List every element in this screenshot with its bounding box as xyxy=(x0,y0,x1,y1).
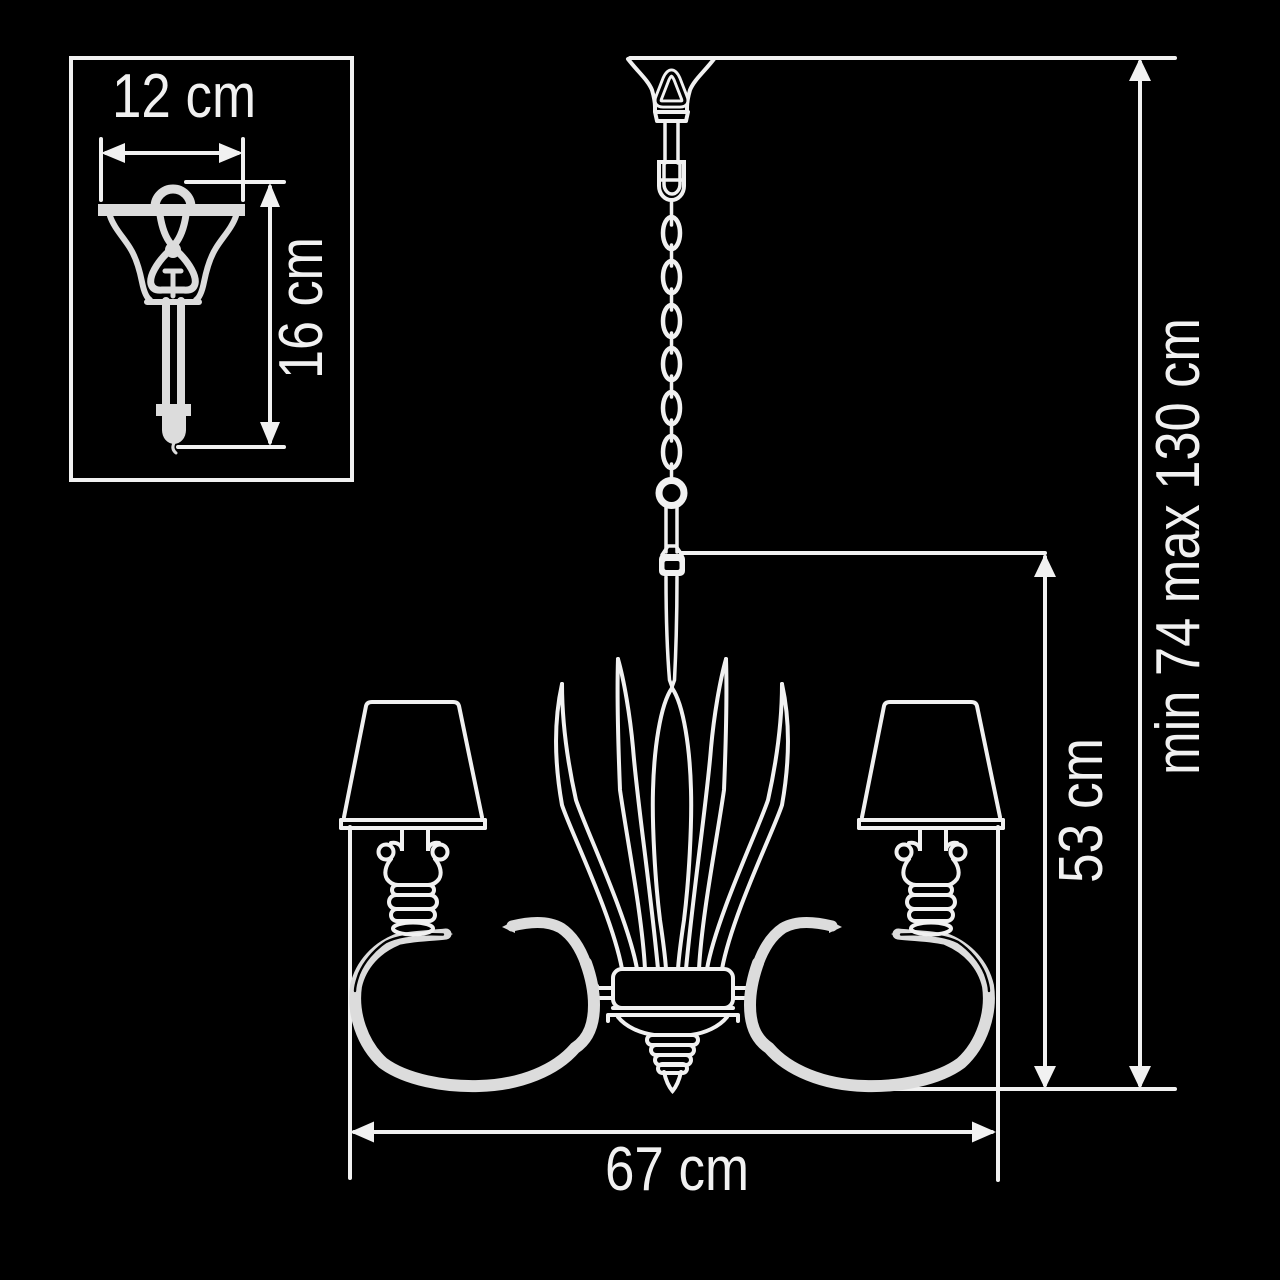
svg-text:53 cm: 53 cm xyxy=(1047,738,1116,883)
svg-text:12 cm: 12 cm xyxy=(112,62,256,131)
svg-text:16 cm: 16 cm xyxy=(267,237,336,379)
svg-text:67 cm: 67 cm xyxy=(605,1135,749,1204)
svg-text:min 74 max 130 cm: min 74 max 130 cm xyxy=(1144,318,1213,775)
